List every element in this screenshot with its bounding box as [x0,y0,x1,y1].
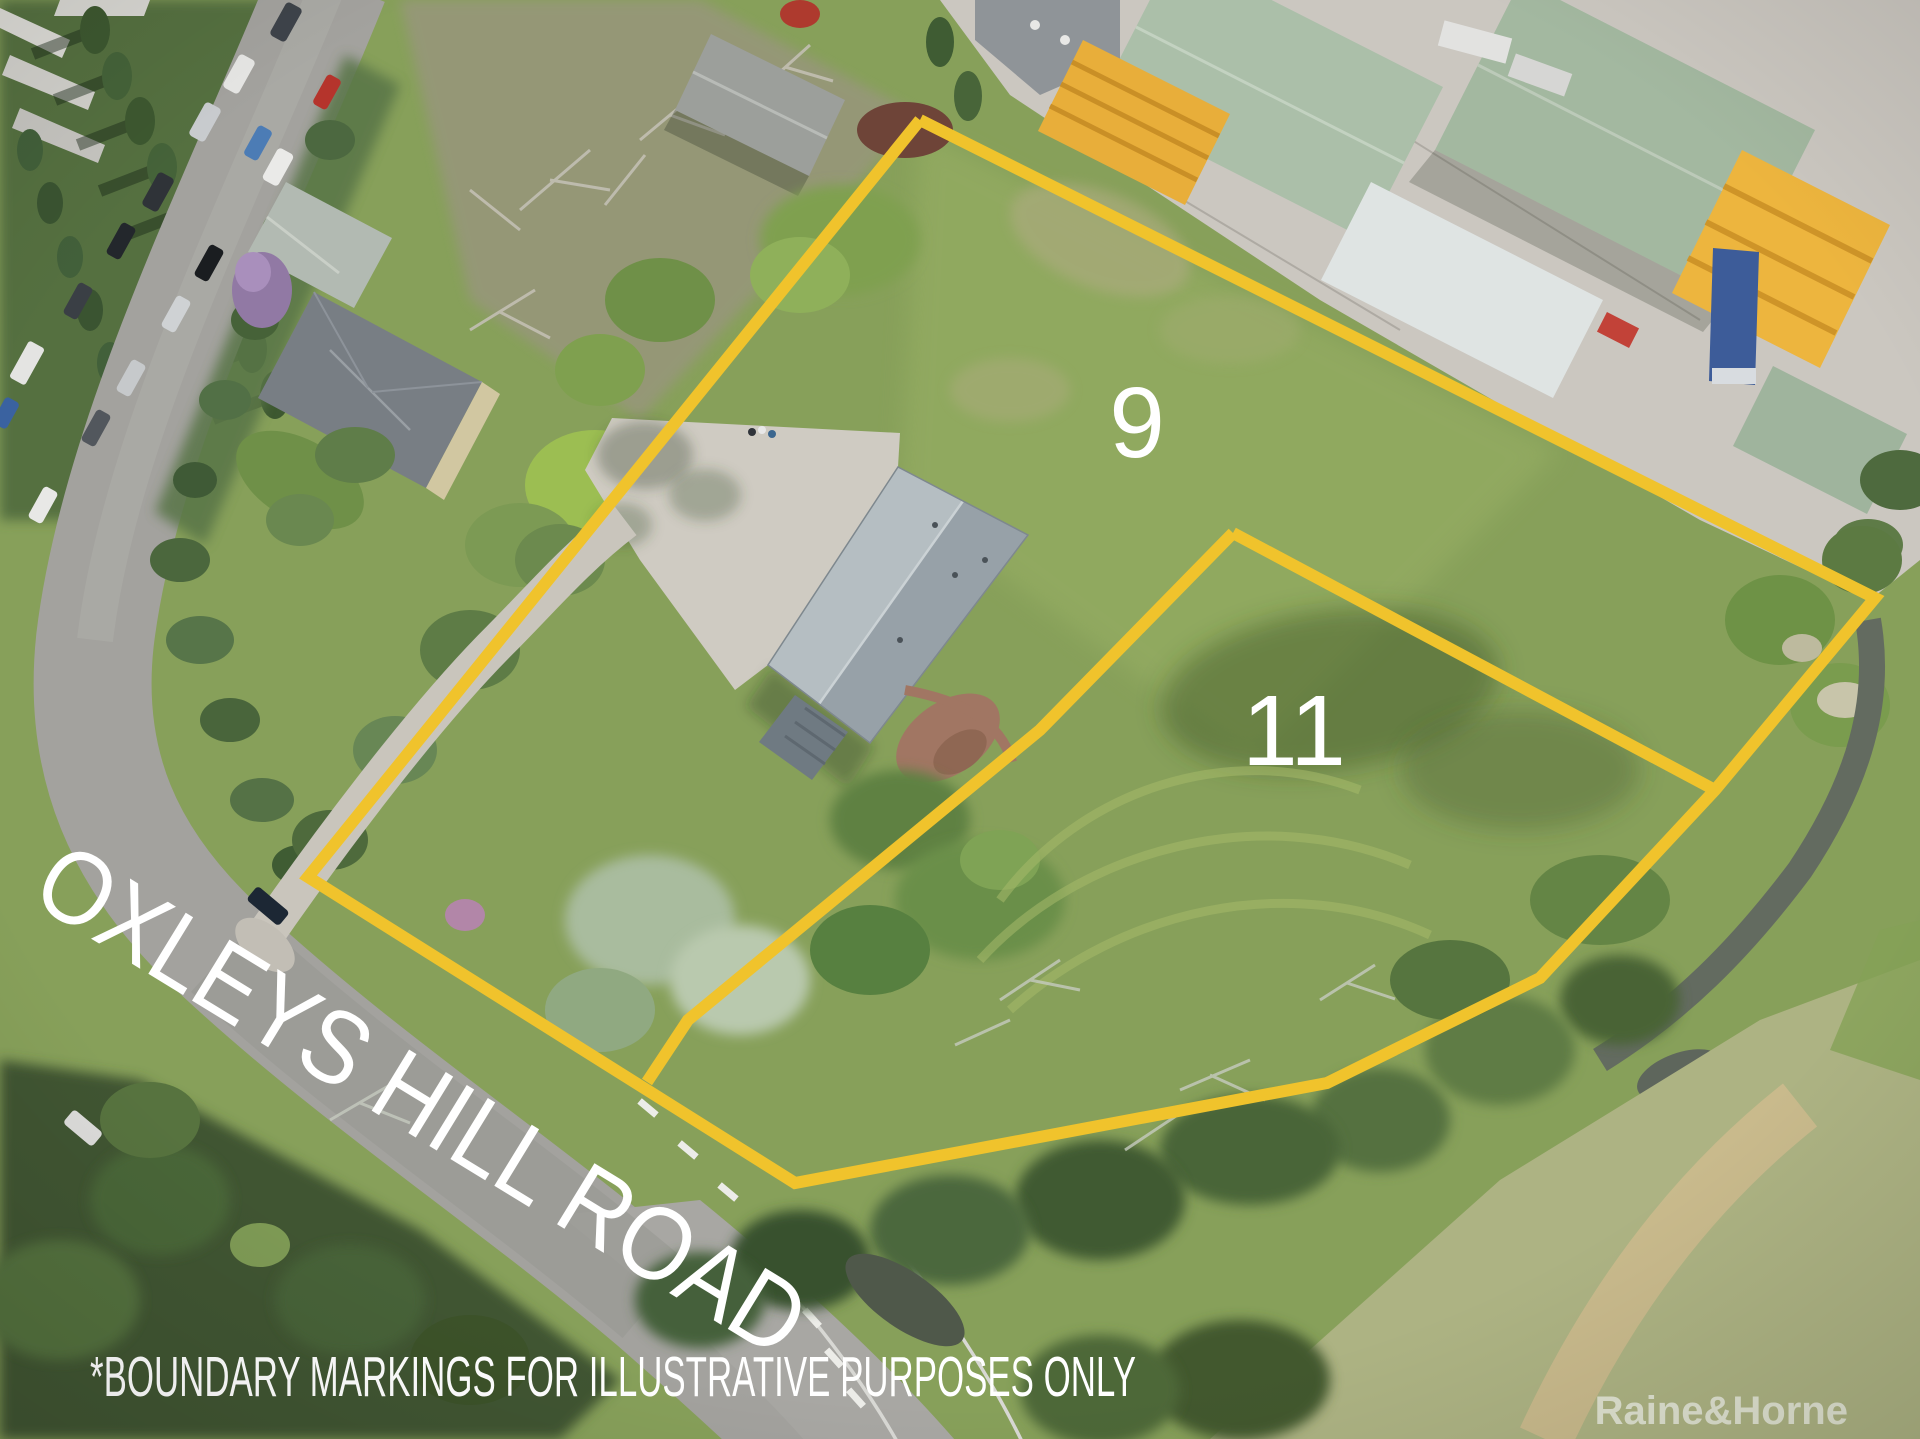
vignette [0,0,1920,1439]
aerial-photo: 9 11 OXLEYS HILL ROAD *BOUNDARY MARKINGS… [0,0,1920,1439]
aerial-scene: 9 11 OXLEYS HILL ROAD *BOUNDARY MARKINGS… [0,0,1920,1439]
